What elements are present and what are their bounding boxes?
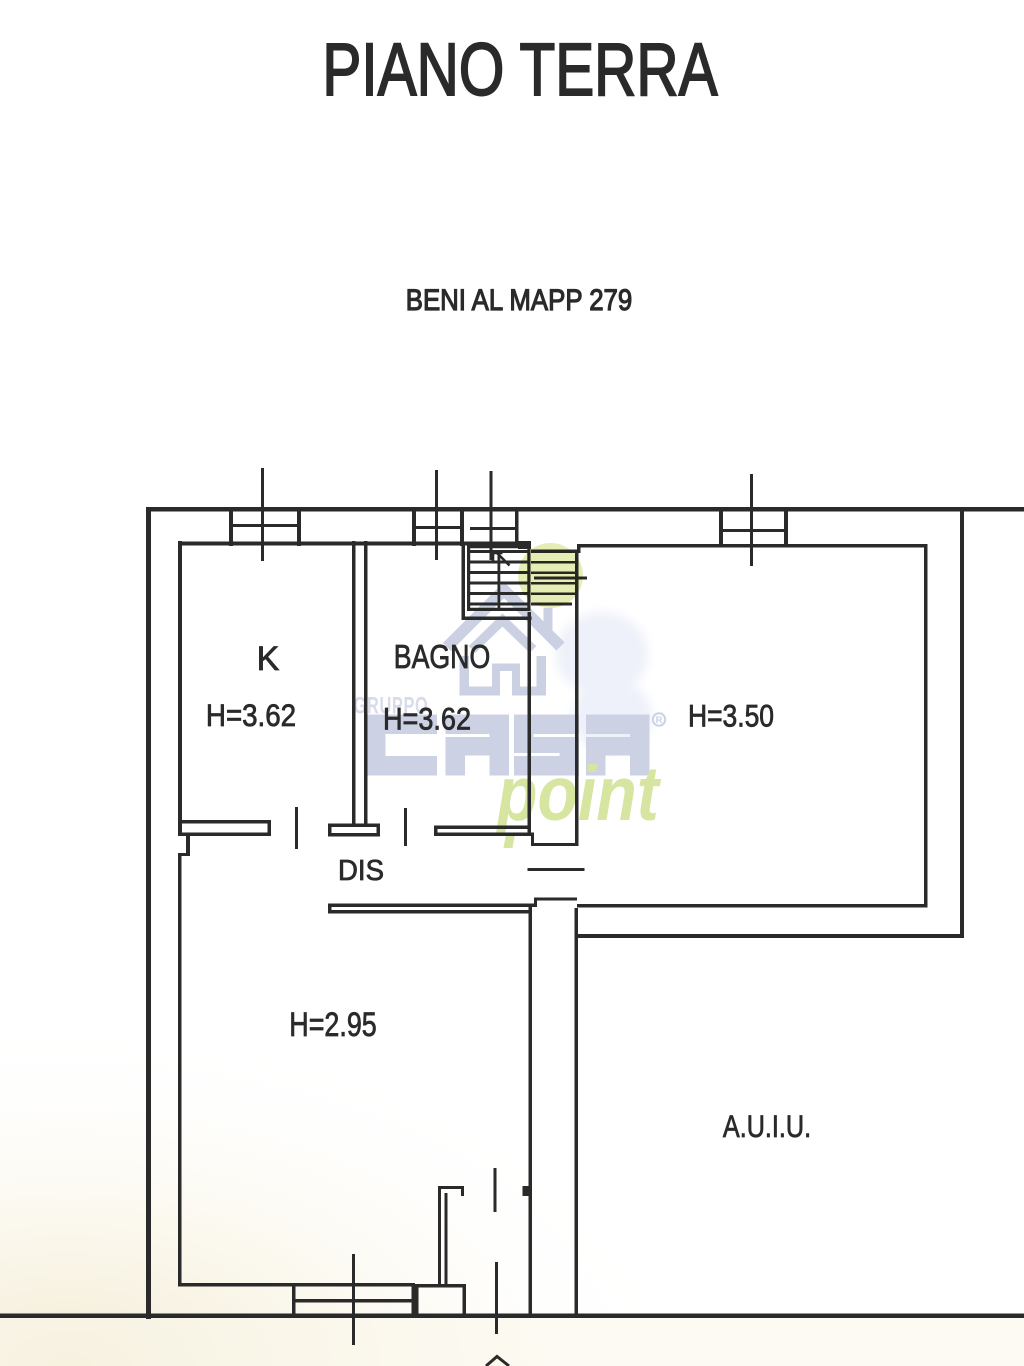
svg-text:A.U.I.U.: A.U.I.U. — [723, 1109, 811, 1144]
svg-text:BENI AL MAPP 279: BENI AL MAPP 279 — [406, 283, 633, 316]
svg-text:BAGNO: BAGNO — [394, 639, 491, 675]
svg-text:R: R — [656, 715, 663, 726]
svg-text:H=3.62: H=3.62 — [383, 702, 471, 737]
svg-text:H=3.50: H=3.50 — [688, 699, 774, 734]
svg-text:PIANO TERRA: PIANO TERRA — [322, 30, 718, 112]
svg-text:DIS: DIS — [338, 853, 384, 886]
svg-text:K: K — [257, 640, 280, 678]
svg-text:H=3.62: H=3.62 — [206, 698, 296, 733]
svg-text:H=2.95: H=2.95 — [289, 1005, 376, 1044]
